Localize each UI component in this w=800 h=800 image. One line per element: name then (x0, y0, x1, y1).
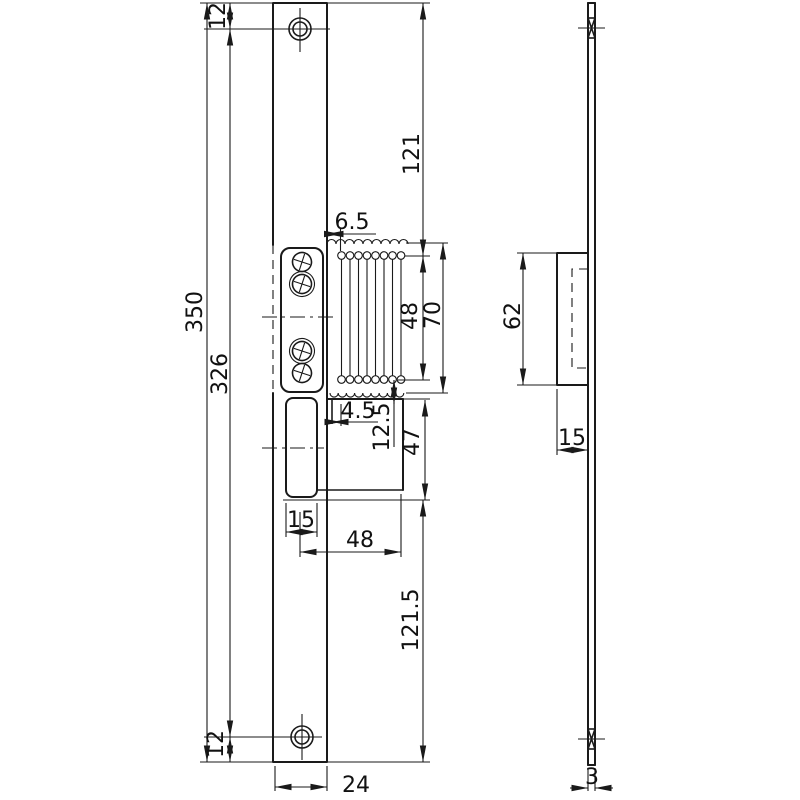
dim-6-5: 6.5 (335, 210, 370, 235)
side-plate-strip (588, 3, 595, 765)
technical-drawing-page: 12 350 326 121 6.5 48 70 4.5 12.5 47 15 … (0, 0, 800, 800)
dim-48-vertical: 48 (398, 302, 423, 330)
strike-plate-drawing: 12 350 326 121 6.5 48 70 4.5 12.5 47 15 … (0, 0, 800, 800)
phillips-screw (290, 361, 314, 385)
break-line-top (327, 240, 408, 245)
countersink-bottom (578, 729, 605, 749)
hidden-cavity-outline (572, 269, 588, 368)
dimension-lines-side (523, 253, 613, 788)
dim-3: 3 (585, 765, 599, 790)
latch-cutout (262, 398, 324, 497)
countersink-top (578, 18, 605, 38)
extension-lines-front (200, 3, 448, 791)
dim-24: 24 (342, 773, 370, 798)
dim-70: 70 (421, 301, 446, 329)
spring-coil-section (338, 252, 405, 384)
break-line-bottom (330, 393, 404, 397)
dim-62: 62 (501, 302, 526, 330)
dim-12-bottom: 12 (204, 730, 229, 758)
front-view: 12 350 326 121 6.5 48 70 4.5 12.5 47 15 … (183, 2, 448, 798)
dim-121-5: 121.5 (399, 589, 424, 652)
dim-15-side: 15 (558, 426, 586, 451)
phillips-screw (290, 250, 314, 274)
dim-121: 121 (400, 133, 425, 175)
dimension-lines-front (207, 3, 443, 787)
side-view: 62 15 3 (501, 3, 613, 791)
phillips-screw (286, 335, 318, 367)
dim-350: 350 (183, 291, 208, 333)
dim-12-5: 12.5 (370, 403, 395, 452)
dim-48-horizontal: 48 (346, 528, 374, 553)
dim-47: 47 (400, 428, 425, 456)
dimension-labels-side: 62 15 3 (501, 302, 599, 790)
dim-326: 326 (208, 353, 233, 395)
phillips-screw (286, 268, 318, 300)
dim-12-top: 12 (206, 2, 231, 30)
dim-15-cutout: 15 (287, 508, 315, 533)
